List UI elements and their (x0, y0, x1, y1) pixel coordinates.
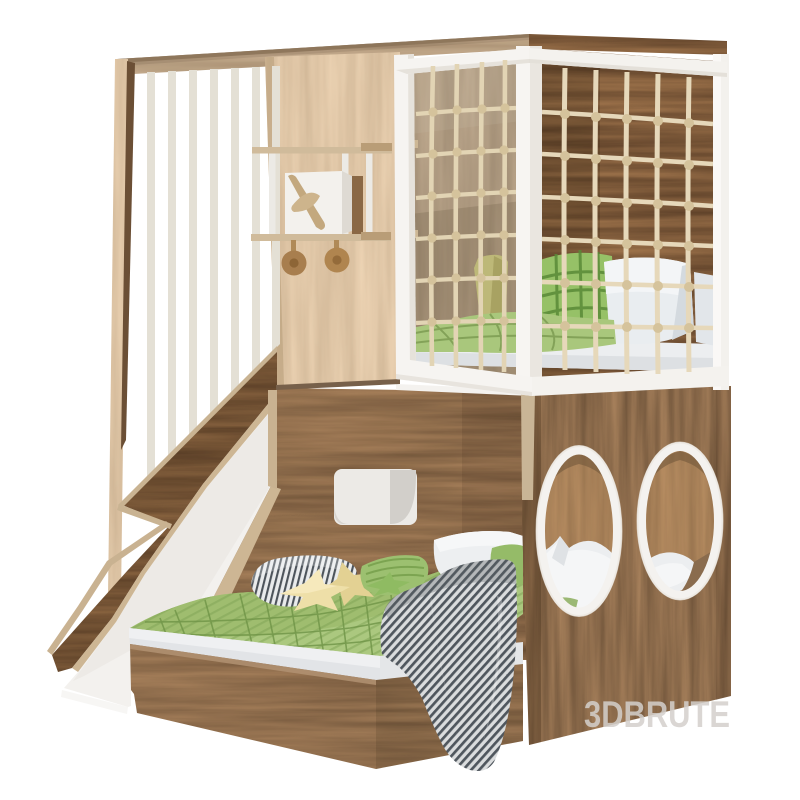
svg-text:3DBRUTE: 3DBRUTE (584, 694, 730, 735)
